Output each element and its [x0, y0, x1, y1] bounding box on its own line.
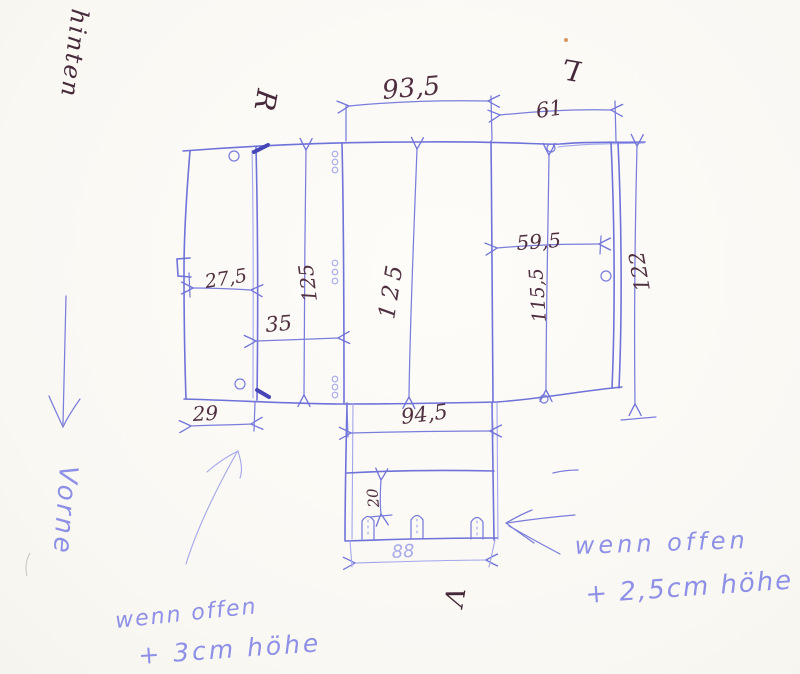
paper-speck — [564, 38, 568, 42]
snap-circle-top-left — [229, 151, 239, 161]
end-tick — [600, 236, 601, 254]
dim-flap-inner-width: 88 — [350, 540, 495, 567]
bottom-edge — [184, 387, 622, 404]
diagonal-pointer-arrow — [186, 451, 241, 564]
dim-right-inner-height: 115,5 — [525, 155, 551, 390]
note-bottom-right: wenn offen + 2,5cm höhe — [574, 526, 794, 610]
dim-line — [355, 560, 486, 563]
ext-line-right — [254, 402, 255, 431]
dim-label-94-5: 94,5 — [400, 399, 449, 429]
dim-label-93-5: 93,5 — [381, 71, 441, 106]
fold-line-2 — [342, 143, 344, 404]
fold-line-3 — [491, 141, 493, 402]
dim-line — [351, 431, 490, 433]
ext-line-right — [615, 101, 616, 141]
right-outer-edge — [618, 142, 621, 388]
flap-left-edge-second — [352, 404, 353, 539]
dim-line — [256, 338, 338, 341]
dim-top-center-width: 93,5 — [346, 71, 492, 141]
dim-right-inner-width: 59,5 — [497, 228, 601, 255]
ext-line-right — [489, 540, 495, 567]
fold-line-1 — [256, 147, 258, 400]
dim-bottom-flap-width: 94,5 — [347, 399, 493, 437]
snap-circle-mid-right — [601, 271, 611, 281]
note-line-1: wenn offen — [114, 594, 259, 634]
underline-tick — [621, 417, 656, 420]
dim-label-left-125: 125 — [293, 262, 321, 303]
label-r: R — [247, 86, 283, 113]
flap-fold-line — [347, 470, 494, 473]
dim-flap-lip-height: 20 — [363, 480, 392, 517]
arrow-barb-right — [238, 451, 241, 478]
note-line-2: + 2,5cm höhe — [584, 566, 794, 610]
dim-label-center-125: 125 — [374, 259, 409, 321]
right-fold-line — [611, 142, 614, 388]
snap-circle-bottom-left — [235, 379, 245, 389]
dim-label-27-5: 27,5 — [202, 265, 248, 294]
dash-mark — [553, 470, 578, 473]
label-l: L — [559, 52, 584, 88]
stitch-dots — [332, 151, 338, 398]
box-net-outline — [177, 141, 645, 404]
dim-line — [409, 149, 417, 397]
paper-mark — [26, 553, 30, 576]
arrow-second-tail — [509, 526, 560, 554]
note-line-1: wenn offen — [574, 526, 749, 560]
sketch-canvas: 93,5 61 122 59,5 115,5 125 125 27,5 35 — [0, 0, 800, 674]
arrow-barb-right — [63, 399, 80, 427]
dim-label-61: 61 — [534, 95, 564, 122]
dim-left-panel-height: 125 — [293, 150, 321, 395]
arrow-barb-left — [207, 451, 238, 472]
dim-left-flap-width: 27,5 — [189, 265, 251, 297]
fold-line-1-second-stroke — [252, 150, 253, 398]
snap-circle-top-right — [547, 144, 555, 152]
note-bottom-left: wenn offen + 3cm höhe — [114, 594, 322, 670]
arrow-shaft — [63, 296, 66, 424]
note-pointer-arrow — [506, 510, 575, 554]
ext-line-left — [350, 541, 352, 567]
arrow-barb-left — [49, 396, 63, 427]
dim-label-35: 35 — [264, 311, 293, 337]
dim-label-29: 29 — [191, 401, 219, 426]
dim-label-88: 88 — [391, 541, 415, 563]
flap-right-edge-second — [497, 403, 498, 539]
label-v: V — [436, 585, 469, 611]
flap-left-edge — [345, 403, 347, 540]
dim-left-panel-width: 35 — [256, 311, 338, 341]
fold-mark-bottom — [257, 390, 269, 397]
dim-right-panel-height: 122 — [621, 146, 656, 420]
label-vorne: Vorne — [47, 465, 83, 557]
dim-label-59-5: 59,5 — [516, 228, 562, 255]
note-line-2: + 3cm höhe — [137, 628, 322, 670]
front-direction-arrow — [49, 296, 80, 427]
dim-label-20: 20 — [363, 487, 383, 509]
scanned-sketch-sheet: 93,5 61 122 59,5 115,5 125 125 27,5 35 — [0, 0, 800, 674]
end-tick — [370, 515, 392, 517]
dim-label-122: 122 — [624, 250, 655, 294]
label-hinten: hinten — [55, 7, 94, 100]
flap-bottom-edge — [345, 538, 497, 541]
dim-top-right-width: 61 — [500, 95, 616, 141]
dim-center-panel-height: 125 — [374, 149, 417, 397]
ext-line-right — [491, 96, 492, 140]
dim-left-flap-bottom-width: 29 — [191, 401, 255, 431]
dim-label-115-5: 115,5 — [525, 267, 551, 323]
